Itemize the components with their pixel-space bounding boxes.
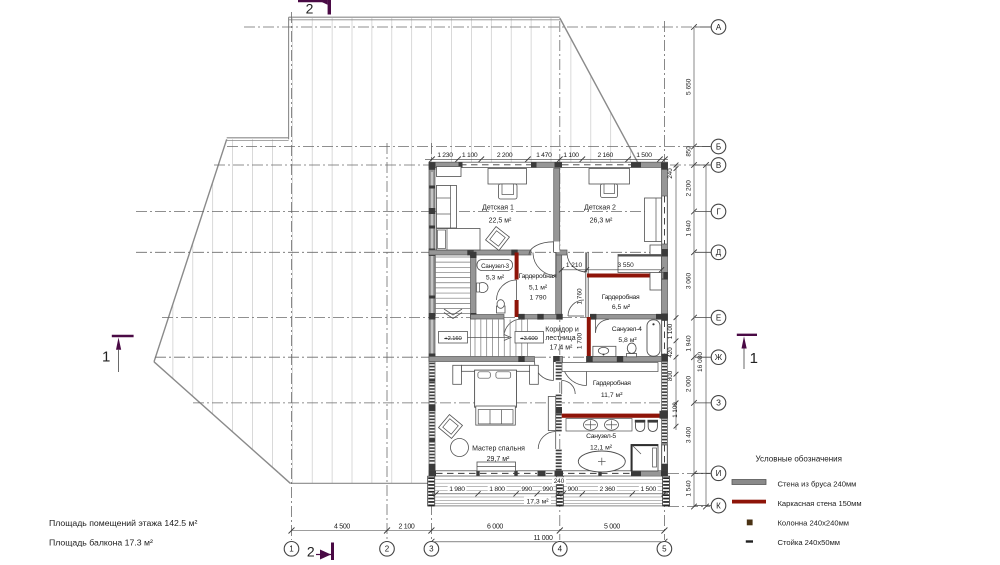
svg-text:29,7 м²: 29,7 м² (487, 456, 510, 463)
svg-text:2 000: 2 000 (686, 375, 693, 392)
svg-text:Площадь балкона 17.3 м²: Площадь балкона 17.3 м² (49, 538, 153, 548)
svg-text:1 100: 1 100 (462, 152, 478, 159)
svg-text:Гардеробная: Гардеробная (602, 293, 640, 301)
svg-text:2: 2 (306, 0, 314, 16)
svg-text:1: 1 (289, 545, 294, 554)
svg-text:2: 2 (307, 544, 315, 560)
svg-text:Г: Г (716, 207, 721, 216)
svg-text:2 100: 2 100 (398, 524, 414, 531)
svg-text:В: В (716, 161, 721, 170)
svg-text:3 060: 3 060 (686, 272, 693, 289)
svg-text:11 000: 11 000 (533, 535, 552, 542)
svg-text:1 500: 1 500 (636, 152, 652, 159)
svg-text:Ж: Ж (715, 353, 723, 362)
svg-text:Е: Е (716, 313, 721, 322)
svg-text:1 210: 1 210 (566, 262, 583, 269)
svg-text:5 000: 5 000 (604, 524, 620, 531)
svg-text:Санузел-3: Санузел-3 (481, 263, 510, 270)
svg-text:Гардеробная: Гардеробная (519, 272, 557, 280)
svg-text:К: К (716, 501, 721, 510)
svg-text:800: 800 (667, 370, 674, 381)
svg-text:16 080: 16 080 (697, 352, 704, 372)
svg-text:2 360: 2 360 (600, 486, 616, 493)
svg-text:4: 4 (558, 545, 563, 554)
svg-text:Д: Д (716, 248, 722, 257)
svg-text:990: 990 (521, 486, 532, 493)
svg-text:240: 240 (667, 168, 674, 179)
svg-text:Каркасная стена 150мм: Каркасная стена 150мм (778, 499, 862, 508)
svg-text:6,5 м²: 6,5 м² (612, 304, 631, 311)
svg-text:850: 850 (686, 146, 693, 157)
svg-text:5: 5 (662, 545, 667, 554)
svg-text:Стойка 240х50мм: Стойка 240х50мм (778, 538, 841, 547)
svg-text:17,4 м²: 17,4 м² (550, 344, 573, 351)
svg-text:И: И (716, 469, 722, 478)
svg-text:1 230: 1 230 (437, 152, 453, 159)
svg-text:Санузел-5: Санузел-5 (586, 433, 616, 440)
svg-text:Условные обозначения: Условные обозначения (756, 454, 842, 463)
svg-text:1 790: 1 790 (529, 295, 546, 302)
svg-text:3 550: 3 550 (617, 262, 634, 269)
svg-text:2 200: 2 200 (686, 180, 693, 197)
svg-text:3 400: 3 400 (686, 426, 693, 443)
svg-text:26,3 м²: 26,3 м² (590, 217, 613, 224)
svg-text:900: 900 (568, 486, 579, 493)
svg-text:1 940: 1 940 (686, 220, 693, 237)
svg-text:Гардеробная: Гардеробная (593, 379, 631, 387)
svg-text:1 100: 1 100 (672, 402, 679, 418)
svg-text:1 800: 1 800 (489, 486, 505, 493)
svg-text:Мастер спальня: Мастер спальня (472, 445, 525, 452)
svg-text:Стена из бруса 240мм: Стена из бруса 240мм (778, 479, 857, 488)
svg-text:Коридор и: Коридор и (545, 327, 579, 334)
svg-text:1: 1 (750, 350, 758, 367)
svg-text:Площадь помещений этажа 142.5: Площадь помещений этажа 142.5 м² (49, 518, 198, 528)
svg-text:2 160: 2 160 (597, 152, 613, 159)
svg-text:1 940: 1 940 (686, 335, 693, 352)
svg-text:1 100: 1 100 (667, 323, 674, 339)
svg-text:5 650: 5 650 (686, 78, 693, 95)
svg-text:17,3 м²: 17,3 м² (526, 498, 549, 505)
svg-text:Санузел-4: Санузел-4 (612, 326, 642, 333)
svg-text:2 200: 2 200 (497, 152, 513, 159)
svg-text:5,8 м²: 5,8 м² (618, 337, 637, 344)
svg-text:11,7 м²: 11,7 м² (601, 392, 623, 399)
svg-text:1 500: 1 500 (640, 486, 656, 493)
svg-text:1 470: 1 470 (536, 152, 552, 159)
svg-text:6 000: 6 000 (487, 524, 503, 531)
svg-text:4 500: 4 500 (334, 524, 350, 531)
svg-text:лестница: лестница (545, 335, 575, 342)
svg-text:5,3 м²: 5,3 м² (486, 275, 505, 282)
svg-text:22,5 м²: 22,5 м² (489, 217, 512, 224)
svg-text:5,1 м²: 5,1 м² (529, 285, 548, 292)
svg-text:З: З (716, 399, 721, 408)
svg-text:1 700: 1 700 (577, 332, 584, 349)
svg-text:1 540: 1 540 (686, 480, 693, 497)
svg-text:1: 1 (102, 348, 110, 365)
svg-text:Детская 2: Детская 2 (584, 204, 616, 211)
svg-text:1 980: 1 980 (449, 486, 465, 493)
svg-text:1 760: 1 760 (577, 288, 584, 305)
svg-text:240: 240 (554, 478, 565, 485)
svg-text:420: 420 (667, 347, 674, 358)
svg-text:Колонна 240х240мм: Колонна 240х240мм (778, 519, 850, 528)
svg-text:3: 3 (429, 545, 434, 554)
svg-text:Детская 1: Детская 1 (482, 204, 514, 211)
svg-text:2: 2 (385, 545, 390, 554)
svg-text:Б: Б (716, 142, 721, 151)
svg-text:12,1 м²: 12,1 м² (590, 445, 613, 452)
svg-text:1 100: 1 100 (563, 152, 579, 159)
svg-text:А: А (716, 23, 722, 32)
svg-text:990: 990 (542, 486, 553, 493)
